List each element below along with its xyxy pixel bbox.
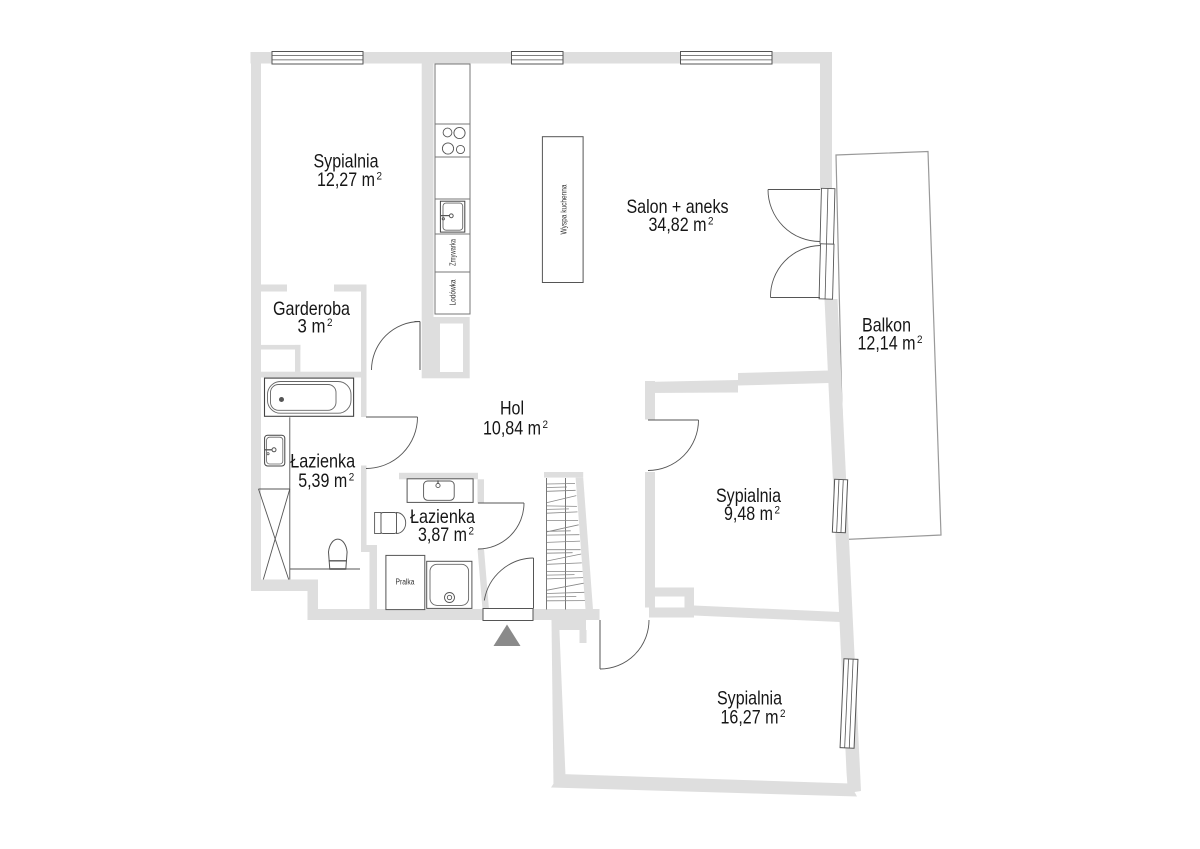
svg-text:Lodówka: Lodówka — [449, 279, 458, 305]
svg-text:12,14 m: 12,14 m — [858, 333, 916, 355]
svg-text:9,48 m: 9,48 m — [724, 503, 773, 525]
svg-text:2: 2 — [543, 419, 549, 431]
svg-text:2: 2 — [780, 708, 786, 720]
svg-text:2: 2 — [708, 216, 714, 228]
svg-text:Zmywarka: Zmywarka — [449, 239, 458, 266]
svg-text:2: 2 — [327, 317, 333, 329]
svg-text:2: 2 — [349, 472, 355, 484]
svg-text:Wyspa kuchenna: Wyspa kuchenna — [560, 184, 569, 234]
svg-text:2: 2 — [917, 334, 923, 346]
svg-text:2: 2 — [469, 526, 475, 538]
svg-text:16,27 m: 16,27 m — [721, 707, 779, 729]
svg-text:5,39 m: 5,39 m — [298, 470, 347, 492]
svg-text:3,87 m: 3,87 m — [418, 524, 467, 546]
svg-text:Hol: Hol — [500, 398, 524, 420]
svg-text:2: 2 — [377, 171, 383, 183]
svg-text:10,84 m: 10,84 m — [483, 418, 541, 440]
svg-text:Pralka: Pralka — [396, 578, 415, 587]
svg-text:12,27 m: 12,27 m — [317, 169, 375, 191]
svg-text:34,82 m: 34,82 m — [649, 214, 707, 236]
svg-text:3 m: 3 m — [298, 316, 326, 338]
svg-text:2: 2 — [775, 505, 781, 517]
